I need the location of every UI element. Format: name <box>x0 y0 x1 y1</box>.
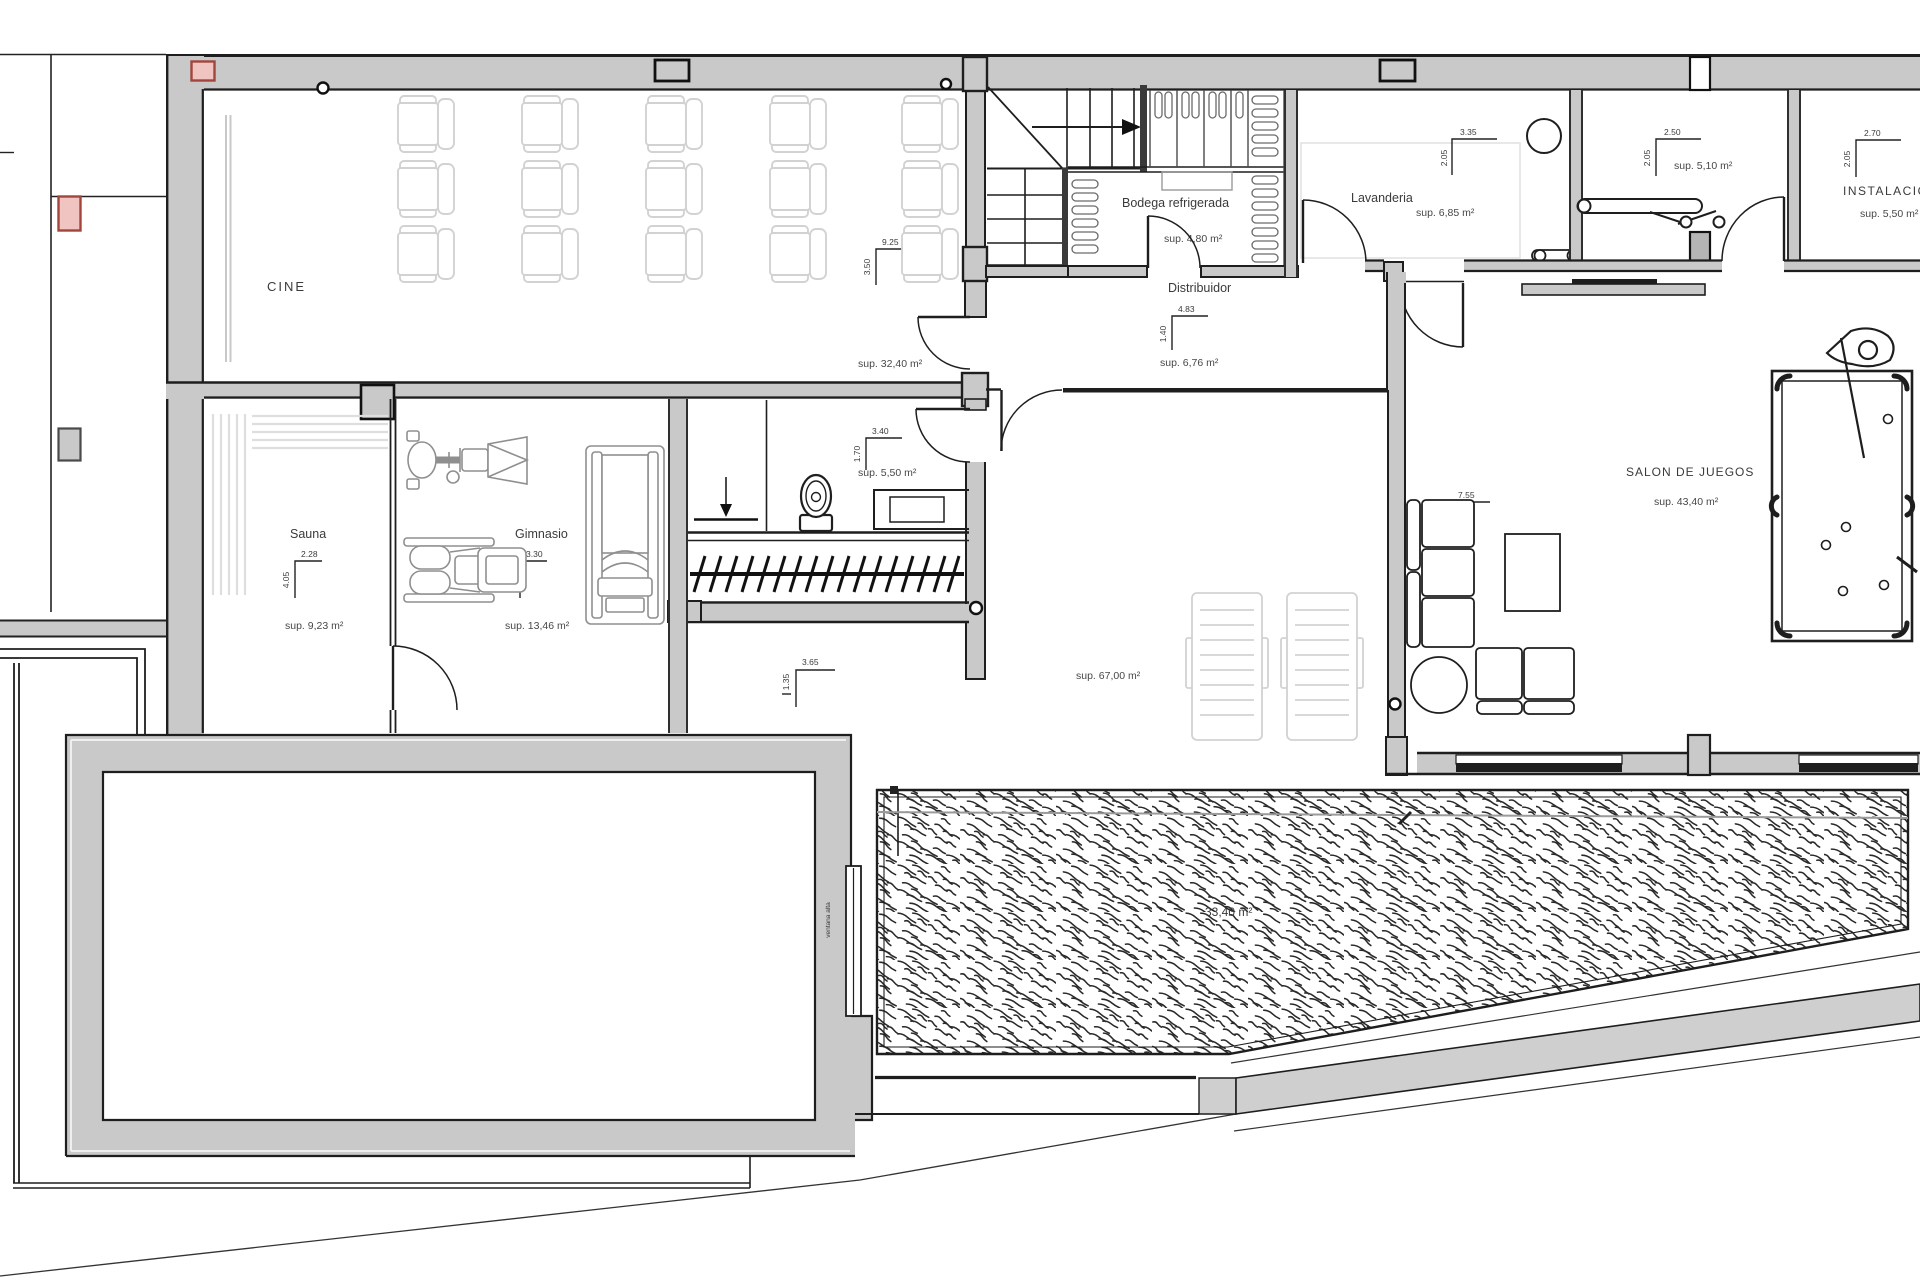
svg-text:CINE: CINE <box>267 279 306 294</box>
svg-text:1.35: 1.35 <box>781 673 791 690</box>
svg-text:sup. 5,50 m²: sup. 5,50 m² <box>858 467 917 479</box>
svg-text:3.30: 3.30 <box>526 549 543 559</box>
svg-text:INSTALACION: INSTALACION <box>1843 184 1920 198</box>
svg-text:sup. 6,76 m²: sup. 6,76 m² <box>1160 357 1219 369</box>
svg-text:sup. 5,50 m²: sup. 5,50 m² <box>1860 208 1919 220</box>
svg-text:sup. 67,00 m²: sup. 67,00 m² <box>1076 670 1141 682</box>
svg-text:2.05: 2.05 <box>1642 149 1652 166</box>
svg-text:2.05: 2.05 <box>1439 149 1449 166</box>
svg-text:sup. 32,40 m²: sup. 32,40 m² <box>858 358 923 370</box>
svg-text:ventana alta: ventana alta <box>825 902 832 938</box>
svg-text:3.65: 3.65 <box>802 657 819 667</box>
svg-text:33,40 m²: 33,40 m² <box>1205 905 1252 919</box>
svg-text:sup. 13,46 m²: sup. 13,46 m² <box>505 620 570 632</box>
svg-text:SALON DE JUEGOS: SALON DE JUEGOS <box>1626 465 1754 479</box>
svg-text:2.70: 2.70 <box>1864 128 1881 138</box>
svg-text:3.35: 3.35 <box>1460 127 1477 137</box>
svg-text:4.83: 4.83 <box>1178 304 1195 314</box>
svg-text:Distribuidor: Distribuidor <box>1168 281 1231 295</box>
svg-text:Lavanderia: Lavanderia <box>1351 191 1413 205</box>
svg-text:1.70: 1.70 <box>852 445 862 462</box>
svg-text:sup. 9,23 m²: sup. 9,23 m² <box>285 620 344 632</box>
svg-text:9.25: 9.25 <box>882 237 899 247</box>
svg-text:Bodega refrigerada: Bodega refrigerada <box>1122 196 1229 210</box>
svg-text:3.50: 3.50 <box>862 258 872 275</box>
svg-text:2.50: 2.50 <box>1664 127 1681 137</box>
svg-text:Gimnasio: Gimnasio <box>515 527 568 541</box>
svg-text:1.40: 1.40 <box>1158 325 1168 342</box>
svg-text:2.05: 2.05 <box>1842 150 1852 167</box>
svg-text:sup. 43,40 m²: sup. 43,40 m² <box>1654 496 1719 508</box>
svg-text:sup. 6,85 m²: sup. 6,85 m² <box>1416 207 1475 219</box>
svg-text:7.55: 7.55 <box>1458 490 1475 500</box>
svg-text:3.40: 3.40 <box>872 426 889 436</box>
svg-text:4.05: 4.05 <box>281 571 291 588</box>
svg-text:sup. 5,10 m²: sup. 5,10 m² <box>1674 160 1733 172</box>
svg-text:Sauna: Sauna <box>290 527 326 541</box>
svg-text:2.28: 2.28 <box>301 549 318 559</box>
